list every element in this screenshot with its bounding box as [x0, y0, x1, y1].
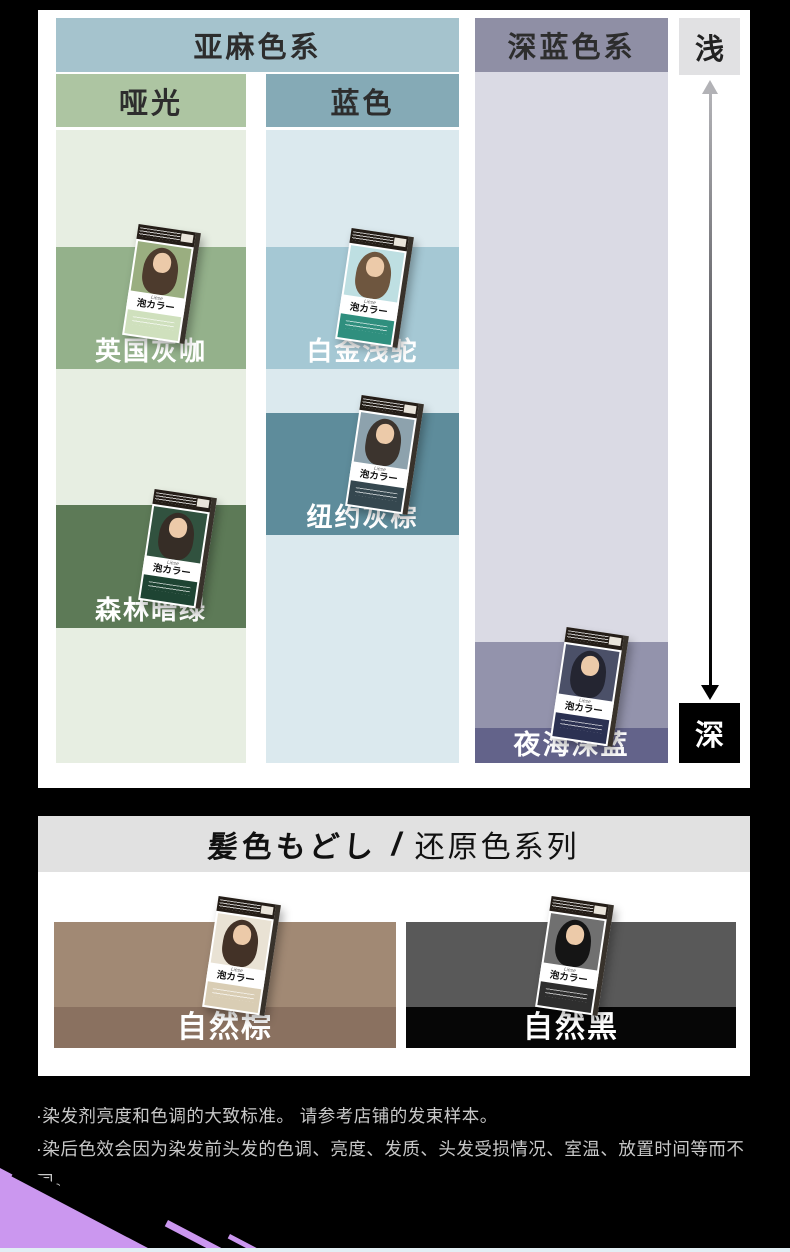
box-tag	[609, 636, 622, 646]
box-model-photo	[344, 245, 405, 302]
column-matte-header: 哑光	[56, 74, 246, 127]
box-tag	[394, 237, 407, 247]
column-blue-header: 蓝色	[266, 74, 459, 127]
restore-series-header: 髪色もどし / 还原色系列	[38, 816, 750, 872]
restore-series-panel: 髪色もどし / 还原色系列 自然棕 自然黑 Liese 泡カラー	[38, 816, 750, 1076]
light-to-dark-arrow	[700, 80, 720, 700]
arrow-line	[709, 94, 712, 685]
arrowhead-up-icon	[702, 80, 718, 94]
product-labelband-natural-brown: 自然棕	[54, 1007, 396, 1048]
dark-label-box: 深	[679, 703, 740, 763]
arrowhead-down-icon	[701, 685, 719, 700]
box-tag	[261, 905, 274, 915]
color-series-panel: 亚麻色系 深蓝色系 浅 深 哑光 蓝色 英国灰咖 白金浅驼 纽约灰棕 森林暗绿 …	[38, 10, 750, 788]
product-label: 自然黑	[523, 1013, 619, 1043]
bottom-strip	[0, 1248, 790, 1252]
restore-title-separator: /	[392, 826, 401, 863]
box-tag	[181, 233, 194, 243]
corner-brush-decor	[0, 1162, 320, 1252]
light-label-box: 浅	[679, 18, 740, 75]
restore-title-japanese: 髪色もどし	[207, 822, 379, 866]
product-label: 英国灰咖	[95, 338, 207, 369]
hair-color-chart-page: 亚麻色系 深蓝色系 浅 深 哑光 蓝色 英国灰咖 白金浅驼 纽约灰棕 森林暗绿 …	[0, 0, 790, 1252]
box-tag	[594, 905, 607, 915]
box-model-photo	[544, 913, 605, 970]
product-labelband-natural-black: 自然黑	[406, 1007, 736, 1048]
header-linen-series: 亚麻色系	[56, 18, 459, 72]
restore-title-chinese: 还原色系列	[415, 822, 580, 866]
box-model-photo	[147, 506, 208, 563]
box-tag	[197, 498, 210, 508]
box-model-photo	[131, 241, 192, 298]
box-model-photo	[354, 412, 415, 469]
box-tag	[404, 404, 417, 414]
footnote-line-1: ·染发剂亮度和色调的大致标准。 请参考店铺的发束样本。	[36, 1100, 766, 1133]
product-label: 自然棕	[177, 1013, 273, 1043]
header-deepblue-series: 深蓝色系	[475, 18, 668, 72]
box-model-photo	[559, 644, 620, 701]
box-model-photo	[211, 913, 272, 970]
